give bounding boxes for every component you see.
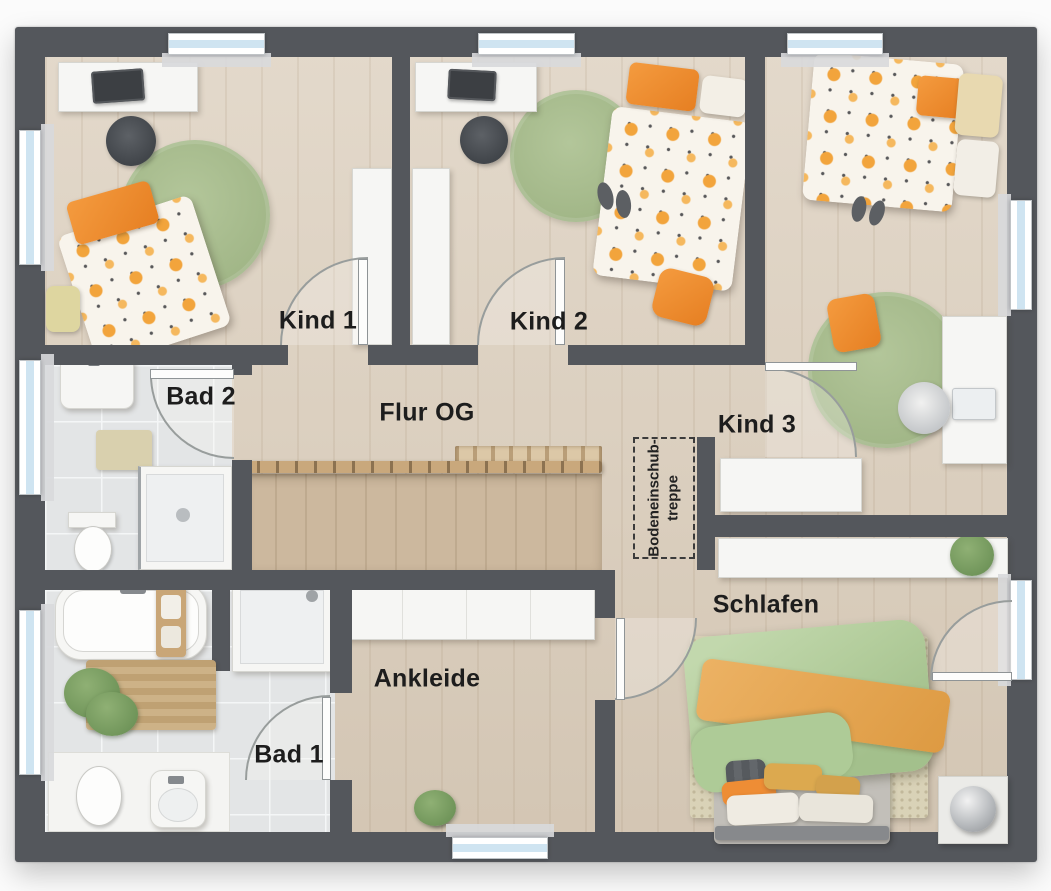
wall-bad1-east-b <box>330 780 352 832</box>
kind3-bed <box>802 52 1006 216</box>
kind2-pillow-white <box>699 75 749 118</box>
wall-kind3-schlafen <box>697 515 1007 537</box>
kind3-door <box>765 362 857 371</box>
schlafen-window <box>1010 580 1032 680</box>
kind3-pillow-white <box>953 139 1000 198</box>
attic-stairs-label-line1: Bodeneinschub- <box>645 433 664 563</box>
kind1-door <box>358 259 368 345</box>
ankleide-plant <box>414 790 456 826</box>
window-sill <box>41 124 54 271</box>
room-label-bad1: Bad 1 <box>254 741 324 770</box>
bad2-bath-mat <box>96 430 152 470</box>
window-sill <box>41 354 54 501</box>
kind3-floor-cushion <box>826 292 883 354</box>
bad2-shower-drain <box>176 508 190 522</box>
kind1-window <box>168 33 265 55</box>
wall-bad1-east-a <box>330 590 352 693</box>
schlafen-pillow-white <box>726 792 799 826</box>
bad1-toilet <box>76 766 122 826</box>
room-label-ankleide: Ankleide <box>374 665 481 694</box>
wall-ankleide-east-b <box>595 700 615 832</box>
kind1-window-west <box>19 130 41 265</box>
window-sill <box>162 53 271 67</box>
wall-flur-north-b <box>368 345 478 365</box>
attic-stairs-outline: Bodeneinschub- treppe <box>633 437 695 559</box>
attic-stairs-label-line2: treppe <box>664 433 683 563</box>
wall-kind1-kind2 <box>392 57 410 345</box>
wall-kind2-kind3 <box>745 57 765 345</box>
kind2-laptop <box>447 69 497 101</box>
window-sill <box>472 53 581 67</box>
kind2-pillow-orange <box>625 62 700 112</box>
wall-bad2-east-a <box>232 345 252 375</box>
bad1-bidet-bowl <box>158 788 198 822</box>
schlafen-pillow-ochre <box>764 763 823 791</box>
kind3-desk-chair <box>898 382 950 434</box>
bad1-caddy-towel <box>161 626 181 648</box>
window-sill <box>781 53 889 67</box>
kind1-desk-chair <box>106 116 156 166</box>
wall-flur-north-c <box>568 345 765 365</box>
kind2-desk-chair <box>460 116 508 164</box>
bad1-shower-head <box>306 590 318 602</box>
stair-railing <box>238 461 602 473</box>
bad2-toilet <box>74 526 112 572</box>
bad1-tub-shower-divider <box>212 583 230 671</box>
window-sill <box>41 604 54 781</box>
wall-kind3-west <box>697 437 715 570</box>
kind3-window-north <box>787 33 883 55</box>
bad1-caddy-towel <box>161 595 181 619</box>
schlafen-pillow-white <box>799 793 874 824</box>
schlafen-speaker-sphere <box>950 786 996 832</box>
bad1-green-towel <box>86 692 138 736</box>
room-label-kind2: Kind 2 <box>510 308 588 337</box>
ankleide-window <box>452 837 548 859</box>
kind3-window-east <box>1010 200 1032 310</box>
floor-plan: Bodeneinschub- treppe Kind 1 Kind 2 Kind… <box>0 0 1051 891</box>
schlafen-plant <box>950 534 994 576</box>
ankleide-door <box>616 618 625 700</box>
kind3-pillow-beige <box>954 73 1003 139</box>
kind1-floor-cushion <box>46 286 80 332</box>
wall-flur-south <box>45 570 595 590</box>
room-label-bad2: Bad 2 <box>166 383 236 412</box>
kind3-sideboard <box>720 458 862 512</box>
schlafen-door <box>932 672 1012 681</box>
wall-bad2-east-b <box>232 460 252 570</box>
kind3-laptop <box>952 388 996 420</box>
room-label-flur-og: Flur OG <box>379 399 474 428</box>
bad1-bidet-faucet <box>168 776 184 784</box>
window-sill <box>446 824 554 837</box>
room-label-kind1: Kind 1 <box>279 307 357 336</box>
schlafen-bed-bench <box>715 826 889 840</box>
room-label-kind3: Kind 3 <box>718 411 796 440</box>
kind1-laptop <box>91 68 145 104</box>
bad2-door <box>150 369 234 379</box>
bad1-window <box>19 610 41 775</box>
wall-ankleide-east-a <box>595 570 615 618</box>
kind2-wardrobe <box>412 168 450 345</box>
bad2-window <box>19 360 41 495</box>
kind2-bed <box>592 54 758 294</box>
attic-stairs-label: Bodeneinschub- treppe <box>645 433 683 563</box>
kind2-window <box>478 33 575 55</box>
room-label-schlafen: Schlafen <box>713 591 820 620</box>
stairwell-opening <box>245 474 602 570</box>
